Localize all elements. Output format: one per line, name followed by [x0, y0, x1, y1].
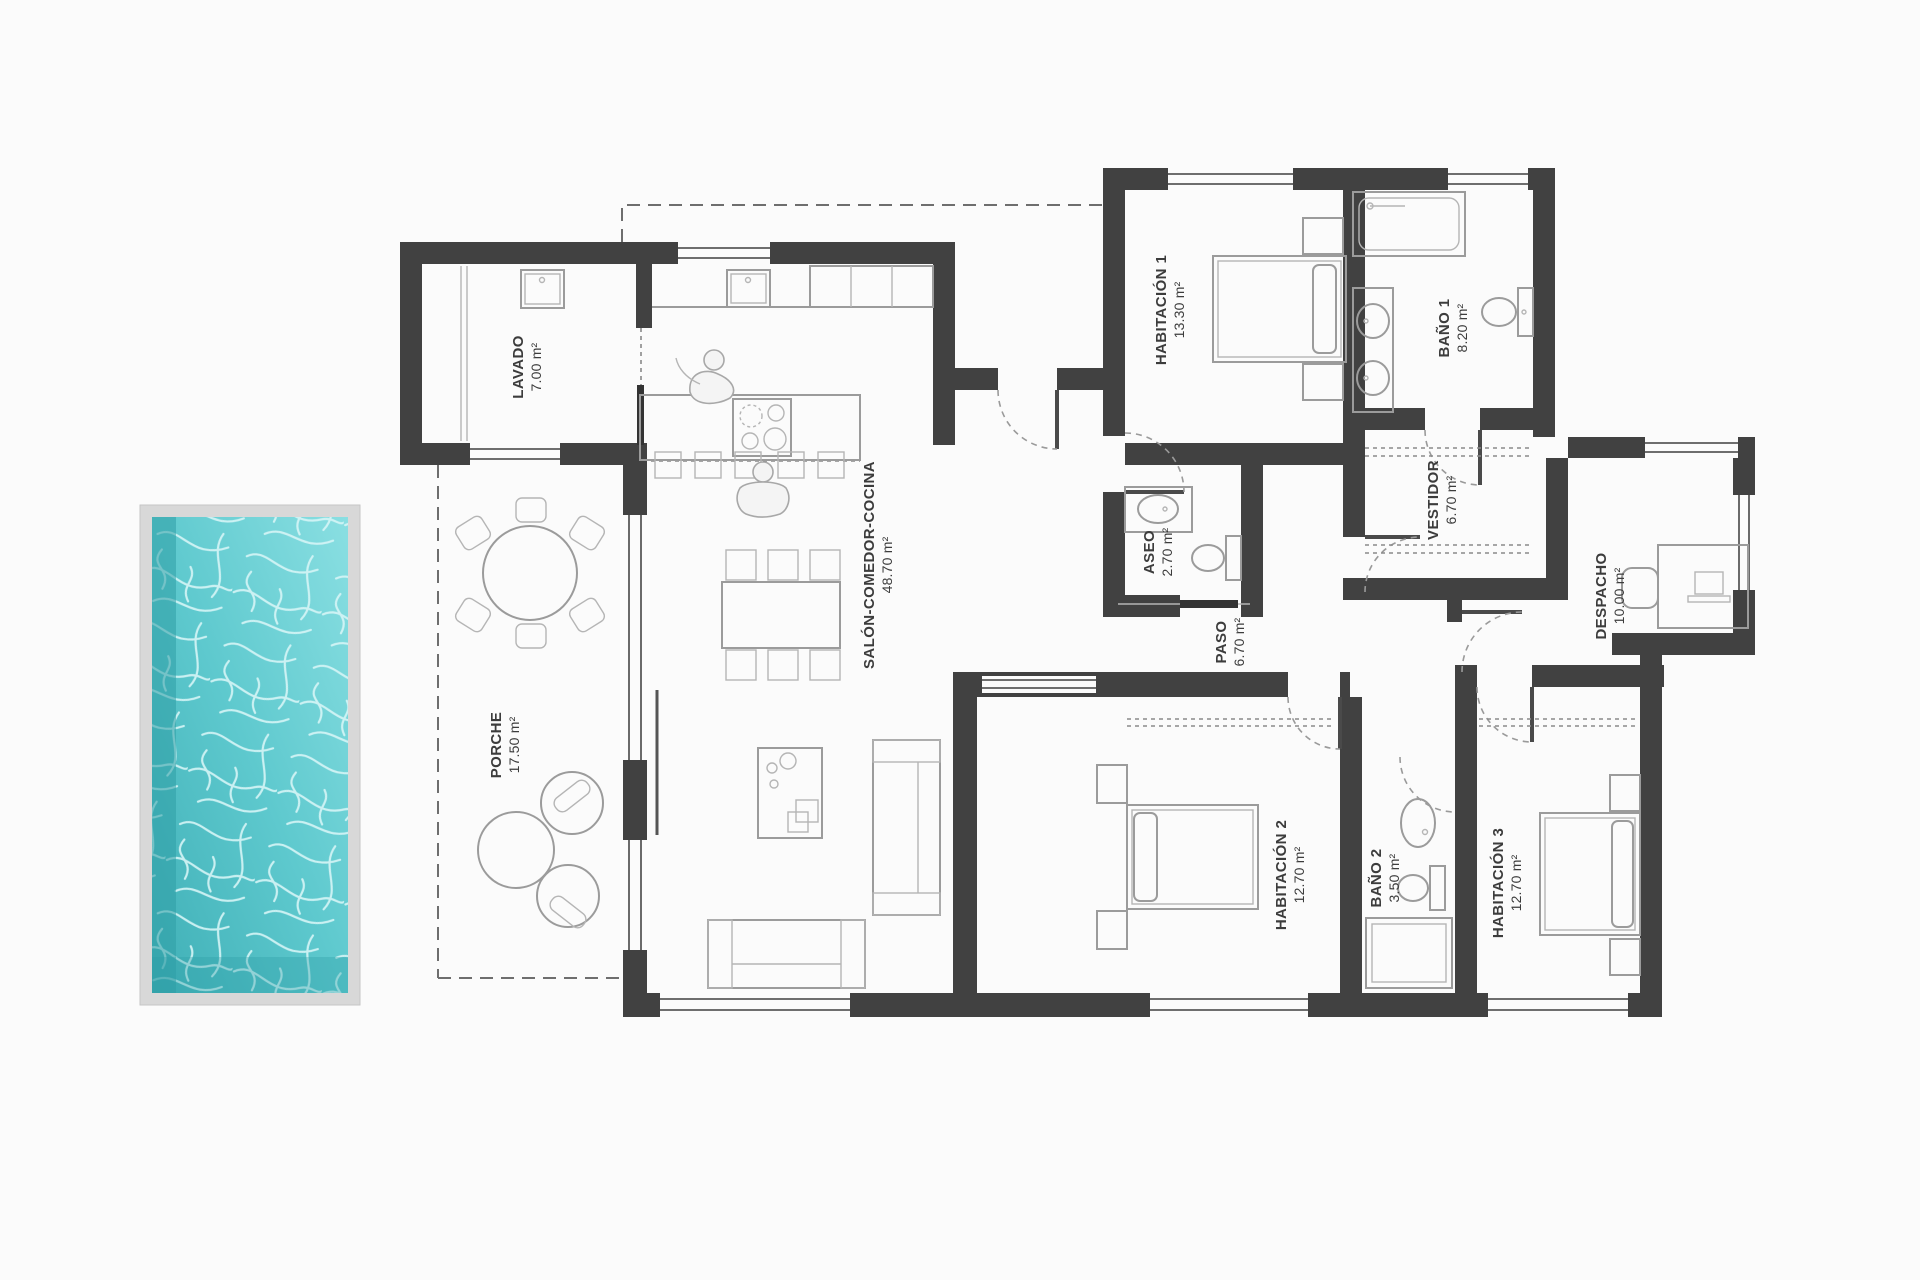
coffee-table: [758, 748, 822, 838]
swimming-pool: [140, 505, 360, 1005]
floor-plan-canvas: LAVADO 7.00 m² PORCHE 17.50 m² SALÓN-COM…: [0, 0, 1920, 1280]
svg-text:HABITACIÓN 1: HABITACIÓN 1: [1152, 255, 1170, 365]
svg-text:LAVADO: LAVADO: [510, 335, 527, 399]
bed-habitacion-2: [1097, 765, 1258, 949]
walls: [400, 168, 1755, 1017]
room-label-despacho: DESPACHO 10.00 m²: [1593, 552, 1627, 639]
sofa-bottom: [708, 920, 865, 988]
svg-text:6.70 m²: 6.70 m²: [1231, 617, 1247, 666]
person-seated: [737, 462, 789, 517]
shower-icon: [1366, 918, 1452, 988]
pillow: [1612, 821, 1633, 927]
svg-text:13.30 m²: 13.30 m²: [1171, 281, 1187, 338]
porch-boundary-dashed: [438, 205, 1103, 978]
pillow: [1134, 813, 1157, 901]
svg-text:10.00 m²: 10.00 m²: [1611, 567, 1627, 624]
svg-text:12.70 m²: 12.70 m²: [1291, 846, 1307, 903]
svg-text:HABITACIÓN 3: HABITACIÓN 3: [1489, 828, 1507, 938]
svg-text:48.70 m²: 48.70 m²: [879, 536, 895, 593]
room-label-salon: SALÓN-COMEDOR-COCINA 48.70 m²: [860, 461, 895, 669]
desk: [1622, 545, 1748, 628]
svg-text:17.50 m²: 17.50 m²: [506, 716, 522, 773]
svg-text:12.70 m²: 12.70 m²: [1508, 854, 1524, 911]
svg-text:8.20 m²: 8.20 m²: [1454, 303, 1470, 352]
washer-icon: [540, 278, 545, 283]
svg-text:PORCHE: PORCHE: [488, 712, 505, 779]
office-chair: [1622, 568, 1658, 608]
svg-text:6.70 m²: 6.70 m²: [1443, 475, 1459, 524]
pool-edge-shadow: [152, 517, 176, 993]
pool-caustics: [152, 517, 348, 993]
svg-text:SALÓN-COMEDOR-COCINA: SALÓN-COMEDOR-COCINA: [860, 461, 878, 669]
room-label-bano-1: BAÑO 1 8.20 m²: [1435, 298, 1470, 357]
pillow: [1313, 265, 1336, 353]
svg-text:HABITACIÓN 2: HABITACIÓN 2: [1272, 820, 1290, 930]
svg-text:DESPACHO: DESPACHO: [1593, 552, 1610, 639]
bathtub-icon: [1353, 192, 1465, 256]
sink-icon: [1138, 495, 1178, 523]
room-label-bano-2: BAÑO 2 3.50 m²: [1367, 848, 1402, 907]
pool-edge-shadow-bottom: [152, 957, 348, 993]
floor-plan-drawing: LAVADO 7.00 m² PORCHE 17.50 m² SALÓN-COM…: [0, 0, 1920, 1280]
sink-icon: [746, 278, 751, 283]
room-label-paso: PASO 6.70 m²: [1213, 617, 1247, 666]
svg-text:7.00 m²: 7.00 m²: [528, 342, 544, 391]
room-label-habitacion-1: HABITACIÓN 1 13.30 m²: [1152, 255, 1187, 365]
sofa-right: [873, 740, 940, 915]
svg-text:ASEO: ASEO: [1141, 530, 1158, 574]
toilet-icon: [1430, 866, 1445, 910]
doors: [637, 328, 1532, 812]
svg-text:PASO: PASO: [1213, 621, 1230, 664]
room-label-vestidor: VESTIDOR 6.70 m²: [1425, 460, 1459, 540]
kitchen-counter: [652, 266, 933, 307]
room-label-habitacion-3: HABITACIÓN 3 12.70 m²: [1489, 828, 1524, 938]
bed-habitacion-1: [1213, 218, 1346, 400]
toilet-icon: [1226, 536, 1241, 580]
svg-text:VESTIDOR: VESTIDOR: [1425, 460, 1442, 540]
bed-habitacion-3: [1540, 775, 1640, 975]
dining-table: [722, 550, 840, 680]
kitchen-island: [640, 395, 860, 478]
room-label-habitacion-2: HABITACIÓN 2 12.70 m²: [1272, 820, 1307, 930]
room-label-aseo: ASEO 2.70 m²: [1141, 527, 1175, 576]
svg-text:BAÑO 2: BAÑO 2: [1367, 848, 1385, 907]
porch-round-table: [453, 498, 606, 648]
room-label-lavado: LAVADO 7.00 m²: [510, 335, 544, 399]
svg-text:BAÑO 1: BAÑO 1: [1435, 298, 1453, 357]
svg-text:3.50 m²: 3.50 m²: [1386, 853, 1402, 902]
svg-text:2.70 m²: 2.70 m²: [1159, 527, 1175, 576]
sink-icon: [1401, 799, 1435, 847]
room-label-porche: PORCHE 17.50 m²: [488, 712, 522, 779]
porch-lounge: [478, 772, 603, 931]
